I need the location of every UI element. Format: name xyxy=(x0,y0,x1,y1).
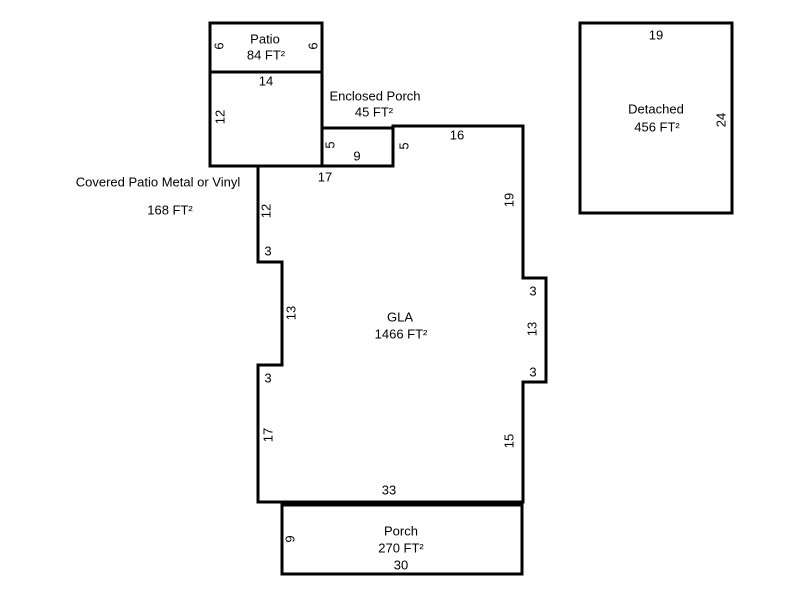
dim-gla-right-bump-top: 3 xyxy=(529,284,536,299)
dim-enclosed-porch-bottom: 9 xyxy=(353,149,360,164)
dim-porch-left: 9 xyxy=(283,535,298,542)
dim-gla-left-notch-top: 3 xyxy=(264,244,271,259)
dim-gla-right-upper: 19 xyxy=(502,193,517,207)
dim-detached-right: 24 xyxy=(714,113,729,127)
dim-detached-top: 19 xyxy=(649,28,663,43)
dim-gla-left-lower: 17 xyxy=(261,428,276,442)
floor-plan-sketch: Patio 84 FT² 6 6 14 Covered Patio Metal … xyxy=(0,0,800,600)
dim-gla-right-bump-bottom: 3 xyxy=(529,365,536,380)
dim-gla-right-lower: 15 xyxy=(502,434,517,448)
enclosed-porch-label: Enclosed Porch xyxy=(329,89,420,104)
dim-patio-bottom: 14 xyxy=(259,74,273,89)
dim-patio-left: 6 xyxy=(212,42,227,49)
dim-gla-top: 17 xyxy=(318,170,332,185)
covered-patio-area-label: 168 FT² xyxy=(147,203,193,218)
covered-patio-label: Covered Patio Metal or Vinyl xyxy=(76,175,241,190)
dim-enclosed-porch-left: 5 xyxy=(323,141,338,148)
dim-porch-bottom: 30 xyxy=(394,558,408,573)
gla-area-label: 1466 FT² xyxy=(375,327,428,342)
floor-plan-canvas: Patio 84 FT² 6 6 14 Covered Patio Metal … xyxy=(0,0,800,600)
dim-gla-left-notch-bottom: 3 xyxy=(264,371,271,386)
detached-outline xyxy=(580,23,732,213)
patio-area-label: 84 FT² xyxy=(247,48,286,63)
dim-gla-top-right: 16 xyxy=(450,128,464,143)
gla-label: GLA xyxy=(387,310,413,325)
dim-gla-right-bump: 13 xyxy=(525,322,540,336)
dim-gla-bottom: 33 xyxy=(382,483,396,498)
dim-gla-left-upper: 12 xyxy=(259,204,274,218)
dim-patio-right: 6 xyxy=(306,42,321,49)
dim-gla-left-notch: 13 xyxy=(284,306,299,320)
detached-area-label: 456 FT² xyxy=(634,120,680,135)
dim-gla-step: 5 xyxy=(397,142,412,149)
enclosed-porch-area-label: 45 FT² xyxy=(355,105,394,120)
dim-covered-patio-left: 12 xyxy=(213,110,228,124)
porch-area-label: 270 FT² xyxy=(378,541,424,556)
detached-label: Detached xyxy=(628,102,684,117)
patio-label: Patio xyxy=(250,32,280,47)
porch-label: Porch xyxy=(384,524,418,539)
